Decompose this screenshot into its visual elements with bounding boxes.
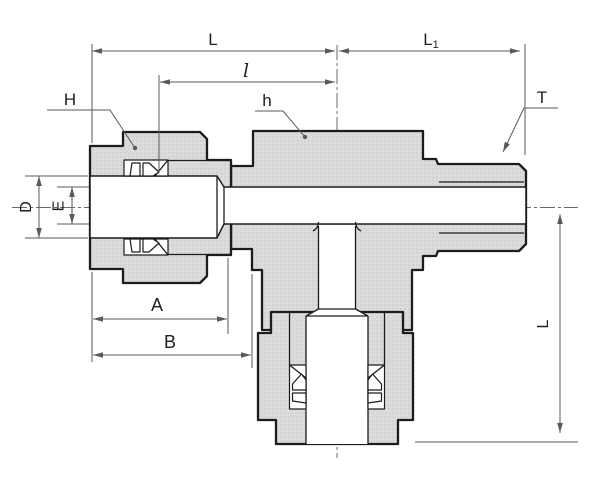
- dim-label-bore-dia: E: [51, 201, 68, 212]
- dim-label-a: A: [151, 295, 163, 315]
- dim-label-b: B: [164, 332, 176, 352]
- dim-label-thread: T: [537, 88, 547, 107]
- dim-label-branch-length: L: [535, 319, 552, 328]
- leader-thread: T: [503, 88, 558, 152]
- dim-bore-dia: E: [51, 187, 90, 224]
- dim-label-male-end-length: L1: [423, 30, 439, 51]
- fitting-cross-section-drawing: L L1 l H h T D E: [0, 0, 603, 485]
- dim-label-tube-hole-dia: D: [18, 201, 35, 213]
- fitting-body: [231, 131, 526, 330]
- drawing-canvas: L L1 l H h T D E: [0, 0, 603, 485]
- dim-label-tube-insertion: l: [243, 60, 249, 82]
- dim-label-nut-hex: H: [64, 90, 76, 109]
- dim-label-body-hex: h: [262, 91, 271, 110]
- dim-label-overall-length: L: [208, 30, 217, 49]
